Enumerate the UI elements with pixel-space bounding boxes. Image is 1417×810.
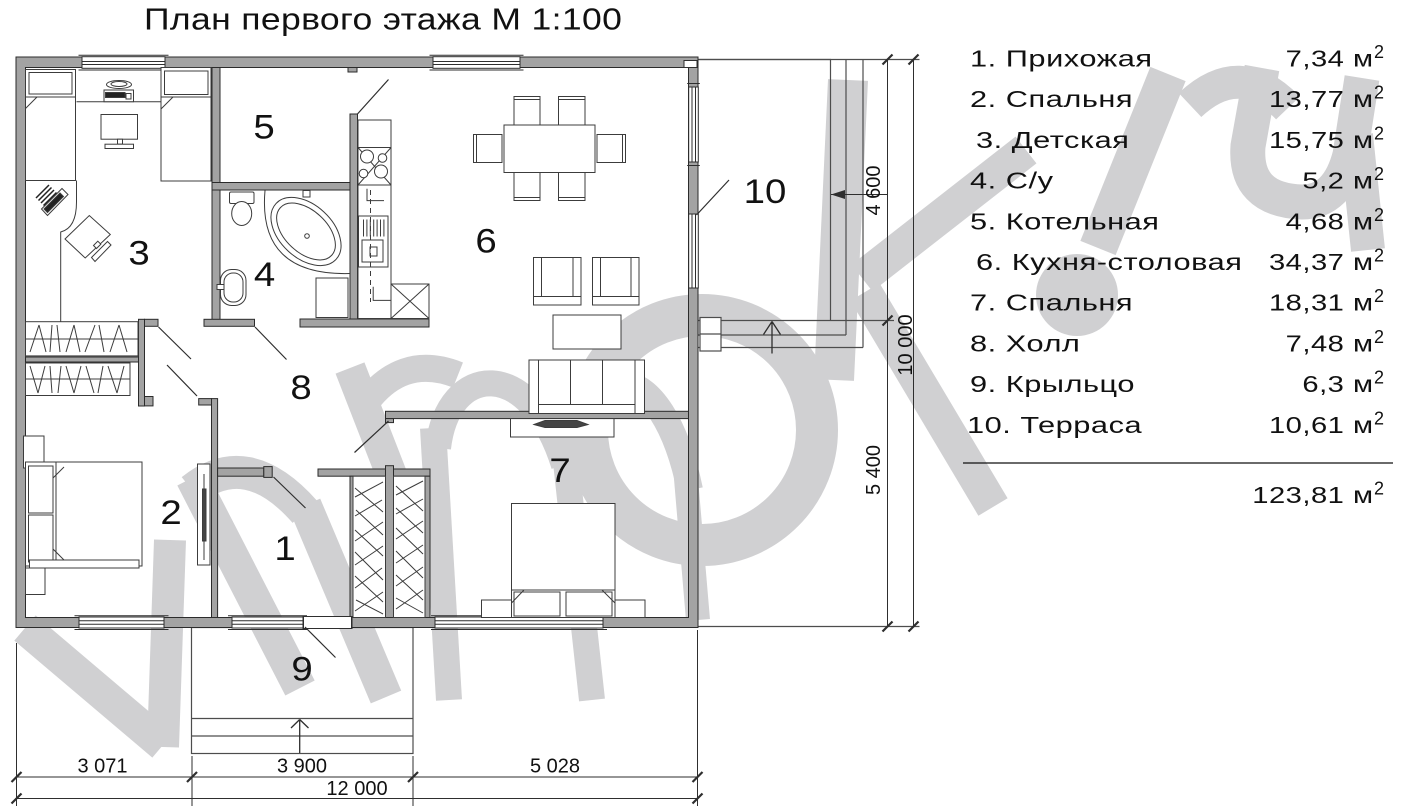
svg-text:5 400: 5 400 [863, 445, 885, 495]
svg-text:2: 2 [1374, 479, 1384, 499]
svg-text:10: 10 [744, 172, 787, 210]
svg-text:1. Прихожая: 1. Прихожая [970, 45, 1153, 72]
svg-text:9. Крыльцо: 9. Крыльцо [970, 371, 1135, 398]
svg-text:2: 2 [1374, 368, 1384, 388]
svg-text:9: 9 [291, 650, 312, 688]
svg-text:4. С/у: 4. С/у [970, 167, 1054, 194]
svg-text:34,37 м: 34,37 м [1269, 249, 1374, 276]
svg-text:5: 5 [253, 108, 274, 146]
svg-text:10,61 м: 10,61 м [1269, 411, 1374, 438]
svg-text:2: 2 [1374, 83, 1384, 103]
svg-text:4 600: 4 600 [863, 165, 885, 215]
svg-text:12 000: 12 000 [326, 778, 387, 800]
svg-text:4: 4 [254, 255, 275, 293]
svg-text:2: 2 [1374, 164, 1384, 184]
svg-text:6. Кухня-столовая: 6. Кухня-столовая [976, 249, 1243, 276]
svg-text:2. Спальня: 2. Спальня [970, 86, 1133, 113]
svg-text:7,34 м: 7,34 м [1286, 45, 1374, 72]
svg-text:7: 7 [549, 451, 570, 489]
svg-text:2: 2 [1374, 123, 1384, 143]
svg-text:2: 2 [160, 493, 181, 531]
svg-text:6,3 м: 6,3 м [1302, 371, 1373, 398]
svg-text:3. Детская: 3. Детская [976, 126, 1129, 153]
svg-text:3 900: 3 900 [277, 756, 327, 778]
svg-text:5. Котельная: 5. Котельная [970, 208, 1159, 235]
svg-text:2: 2 [1374, 205, 1384, 225]
svg-text:7. Спальня: 7. Спальня [970, 289, 1133, 316]
svg-text:2: 2 [1374, 327, 1384, 347]
svg-text:13,77 м: 13,77 м [1269, 86, 1374, 113]
svg-text:5 028: 5 028 [530, 756, 580, 778]
svg-text:18,31 м: 18,31 м [1269, 289, 1374, 316]
svg-text:2: 2 [1374, 286, 1384, 306]
svg-text:2: 2 [1374, 42, 1384, 62]
svg-text:4,68 м: 4,68 м [1286, 208, 1374, 235]
svg-text:123,81 м: 123,81 м [1252, 482, 1373, 509]
svg-text:3: 3 [128, 234, 149, 272]
svg-text:10. Терраса: 10. Терраса [967, 411, 1142, 438]
svg-text:8. Холл: 8. Холл [970, 330, 1080, 357]
svg-text:10 000: 10 000 [895, 314, 917, 375]
svg-text:2: 2 [1374, 408, 1384, 428]
svg-text:5,2 м: 5,2 м [1302, 167, 1373, 194]
svg-text:1: 1 [274, 529, 295, 567]
svg-text:6: 6 [475, 222, 496, 260]
svg-text:2: 2 [1374, 246, 1384, 266]
svg-text:План первого этажа М 1:100: План первого этажа М 1:100 [144, 3, 622, 37]
svg-text:8: 8 [290, 368, 311, 406]
svg-text:7,48 м: 7,48 м [1286, 330, 1374, 357]
svg-text:3 071: 3 071 [77, 756, 127, 778]
svg-text:15,75 м: 15,75 м [1269, 127, 1374, 154]
